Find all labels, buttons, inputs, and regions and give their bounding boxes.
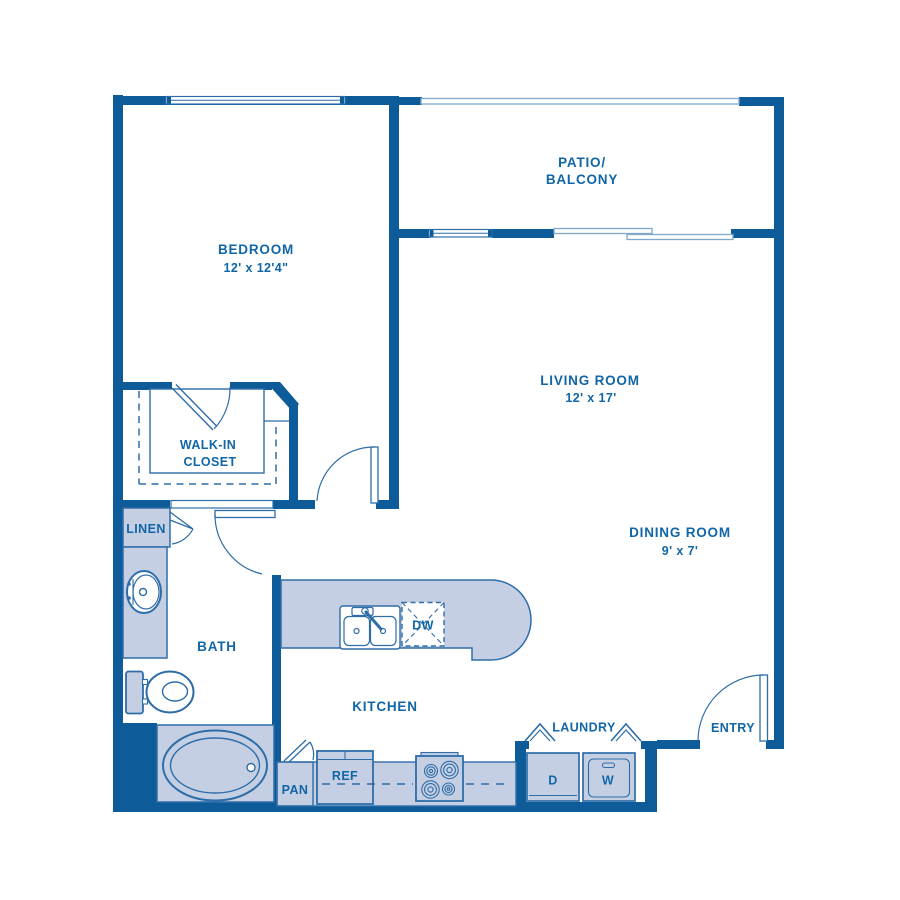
laundry-bifold-left-icon [525, 724, 555, 741]
wall-corner-block [113, 723, 157, 803]
laundry-label: LAUNDRY [552, 721, 616, 735]
kitchen-label: KITCHEN [352, 699, 418, 714]
toilet [126, 672, 194, 714]
wall-laundry-right [645, 741, 657, 803]
bedroom-dimensions: 12' x 12'4" [224, 261, 289, 275]
wall-patio-rail-stub-left [399, 97, 422, 105]
bath-door [215, 511, 275, 575]
entry-label: ENTRY [711, 721, 755, 735]
living-room-window [429, 230, 492, 238]
floor-plan-drawing: BEDROOM 12' x 12'4" PATIO/ BALCONY LIVIN… [0, 0, 900, 900]
refrigerator-label: REF [332, 769, 358, 783]
dining-room-dimensions: 9' x 7' [662, 544, 699, 558]
dishwasher-label: DW [412, 619, 434, 633]
linen-door [170, 512, 193, 544]
sliding-glass-door [554, 229, 733, 240]
wall-patio-bottom-1 [389, 229, 430, 238]
walk-in-closet [139, 385, 290, 485]
bedroom-window [166, 97, 345, 105]
laundry-appliances [527, 753, 635, 801]
patio-label-line1: PATIO/ [558, 155, 606, 170]
wall-right [774, 97, 784, 748]
wall-bedroom-bottom-2 [273, 500, 315, 509]
bathtub [157, 725, 274, 802]
vanity-sink [123, 547, 167, 658]
wall-bedroom-bottom-3 [376, 500, 399, 509]
wall-closet-right [289, 403, 298, 501]
labels: BEDROOM 12' x 12'4" PATIO/ BALCONY LIVIN… [126, 155, 755, 797]
wall-left [113, 95, 123, 812]
wall-laundry-stub-right [641, 741, 657, 749]
dryer-label: D [548, 774, 557, 788]
stove [416, 753, 463, 802]
wall-bedroom-living-divider [389, 96, 399, 508]
living-room-dimensions: 12' x 17' [565, 391, 616, 405]
closet-label-line2: CLOSET [183, 455, 236, 469]
patio-label-line2: BALCONY [546, 172, 618, 187]
hall-opening-header [171, 501, 273, 509]
washer-label: W [602, 774, 614, 788]
wall-entry-left [657, 740, 700, 749]
wall-entry-right [766, 740, 784, 749]
floor-plan: BEDROOM 12' x 12'4" PATIO/ BALCONY LIVIN… [0, 0, 900, 900]
pantry-label: PAN [282, 783, 309, 797]
closet-label-line1: WALK-IN [180, 438, 236, 452]
kitchen-sink [340, 606, 400, 649]
dining-room-label: DINING ROOM [629, 525, 731, 540]
living-room-label: LIVING ROOM [540, 373, 640, 388]
kitchen-fixtures [277, 580, 531, 806]
wall-patio-bottom-3 [731, 229, 784, 238]
pantry-door [284, 740, 314, 763]
wall-patio-bottom-2 [492, 229, 554, 238]
wall-laundry-stub-left [515, 741, 529, 749]
patio-railing [421, 99, 739, 105]
linen-label: LINEN [126, 522, 166, 536]
bath-label: BATH [197, 639, 237, 654]
bedroom-door [317, 447, 378, 503]
bedroom-label: BEDROOM [218, 242, 294, 257]
